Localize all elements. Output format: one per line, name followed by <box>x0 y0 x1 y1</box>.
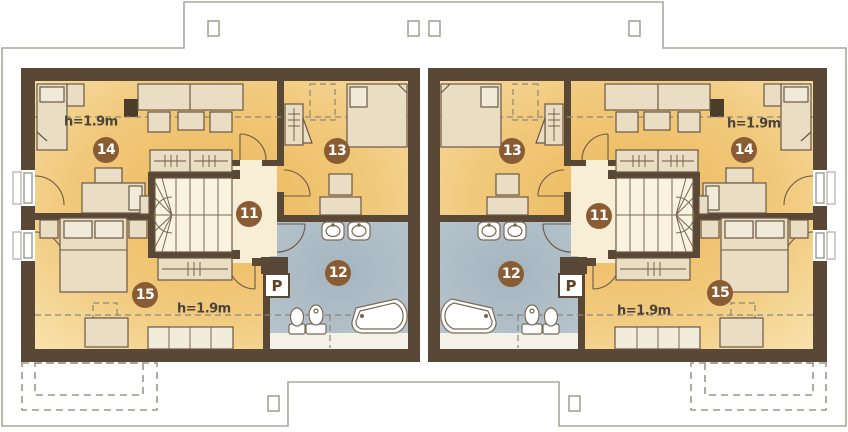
room-badge-13-right: 13 <box>499 138 525 164</box>
room-badge-14-right: 14 <box>731 137 757 163</box>
unit-separation-joint <box>420 66 428 364</box>
washer-label-right: P <box>566 277 577 295</box>
room-badge-12-right: 12 <box>498 261 524 287</box>
room-badge-11-right: 11 <box>586 203 612 229</box>
room-badge-15-left: 15 <box>132 282 158 308</box>
room-badge-11-left: 11 <box>236 201 262 227</box>
height-label-top-left: h=1.9m <box>64 115 118 130</box>
height-label-bottom-right: h=1.9m <box>617 304 671 319</box>
floor-plan-canvas: 14 13 11 15 12 14 13 11 15 12 h=1.9m h=1… <box>0 0 848 432</box>
room-badge-12-left: 12 <box>325 260 351 286</box>
height-label-bottom-left: h=1.9m <box>177 302 231 317</box>
height-label-top-right: h=1.9m <box>727 117 781 132</box>
room-badge-15-right: 15 <box>707 280 733 306</box>
washer-label-left: P <box>272 277 283 295</box>
room-badge-14-left: 14 <box>93 137 119 163</box>
floor-plan-drawing <box>0 0 848 432</box>
room-badge-13-left: 13 <box>324 138 350 164</box>
